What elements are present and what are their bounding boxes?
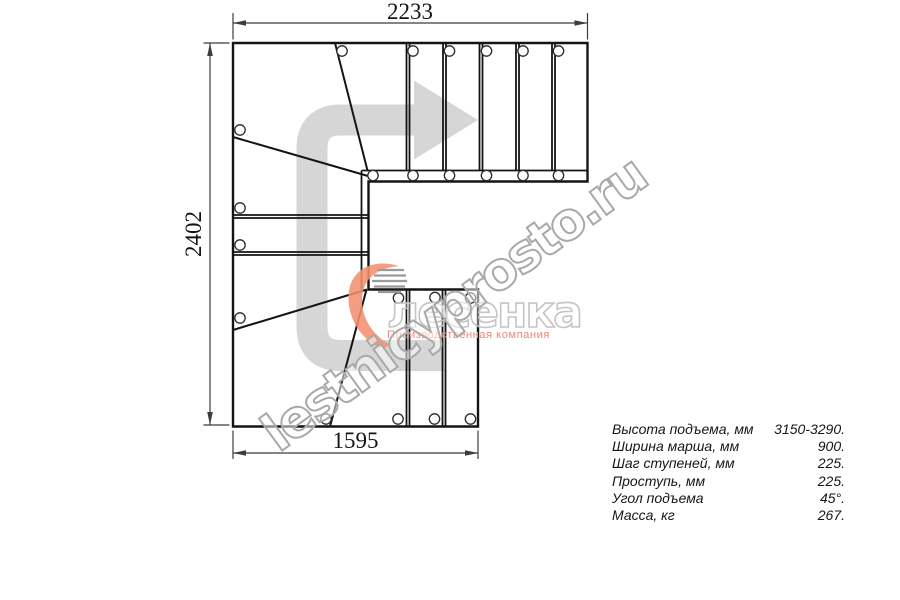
spec-row-march-width: Ширина марша, мм 900. <box>612 438 845 455</box>
dim-arrow-right <box>465 450 478 456</box>
dimension-top-value: 2233 <box>387 0 433 24</box>
spec-row-angle: Угол подъема 45°. <box>612 490 845 507</box>
spec-value: 900. <box>818 438 845 455</box>
dimension-left: 2402 <box>181 43 230 425</box>
spec-value: 225. <box>818 473 845 490</box>
spec-table: Высота подъема, мм 3150-3290. Ширина мар… <box>612 421 845 524</box>
spec-label: Шаг ступеней, мм <box>612 455 735 472</box>
dim-arrow-right <box>575 20 588 26</box>
spec-value: 267. <box>818 507 845 524</box>
spec-label: Высота подъема, мм <box>612 421 754 438</box>
spec-row-tread: Проступь, мм 225. <box>612 473 845 490</box>
dimension-top: 2233 <box>233 0 588 40</box>
staircase-drawing-page: 2233 2402 1595 <box>0 0 900 600</box>
dimension-left-value: 2402 <box>181 211 206 257</box>
spec-value: 3150-3290. <box>774 421 845 438</box>
dim-arrow-down <box>207 412 213 425</box>
spec-label: Угол подъема <box>612 490 704 507</box>
dim-arrow-left <box>233 20 246 26</box>
spec-row-mass: Масса, кг 267. <box>612 507 845 524</box>
spec-label: Масса, кг <box>612 507 675 524</box>
spec-row-height: Высота подъема, мм 3150-3290. <box>612 421 845 438</box>
spec-row-step: Шаг ступеней, мм 225. <box>612 455 845 472</box>
spec-label: Ширина марша, мм <box>612 438 739 455</box>
spec-value: 45°. <box>820 490 845 507</box>
spec-value: 225. <box>818 455 845 472</box>
dim-arrow-up <box>207 43 213 56</box>
dimension-bottom-value: 1595 <box>333 428 379 453</box>
dim-arrow-left <box>233 450 246 456</box>
spec-label: Проступь, мм <box>612 473 705 490</box>
